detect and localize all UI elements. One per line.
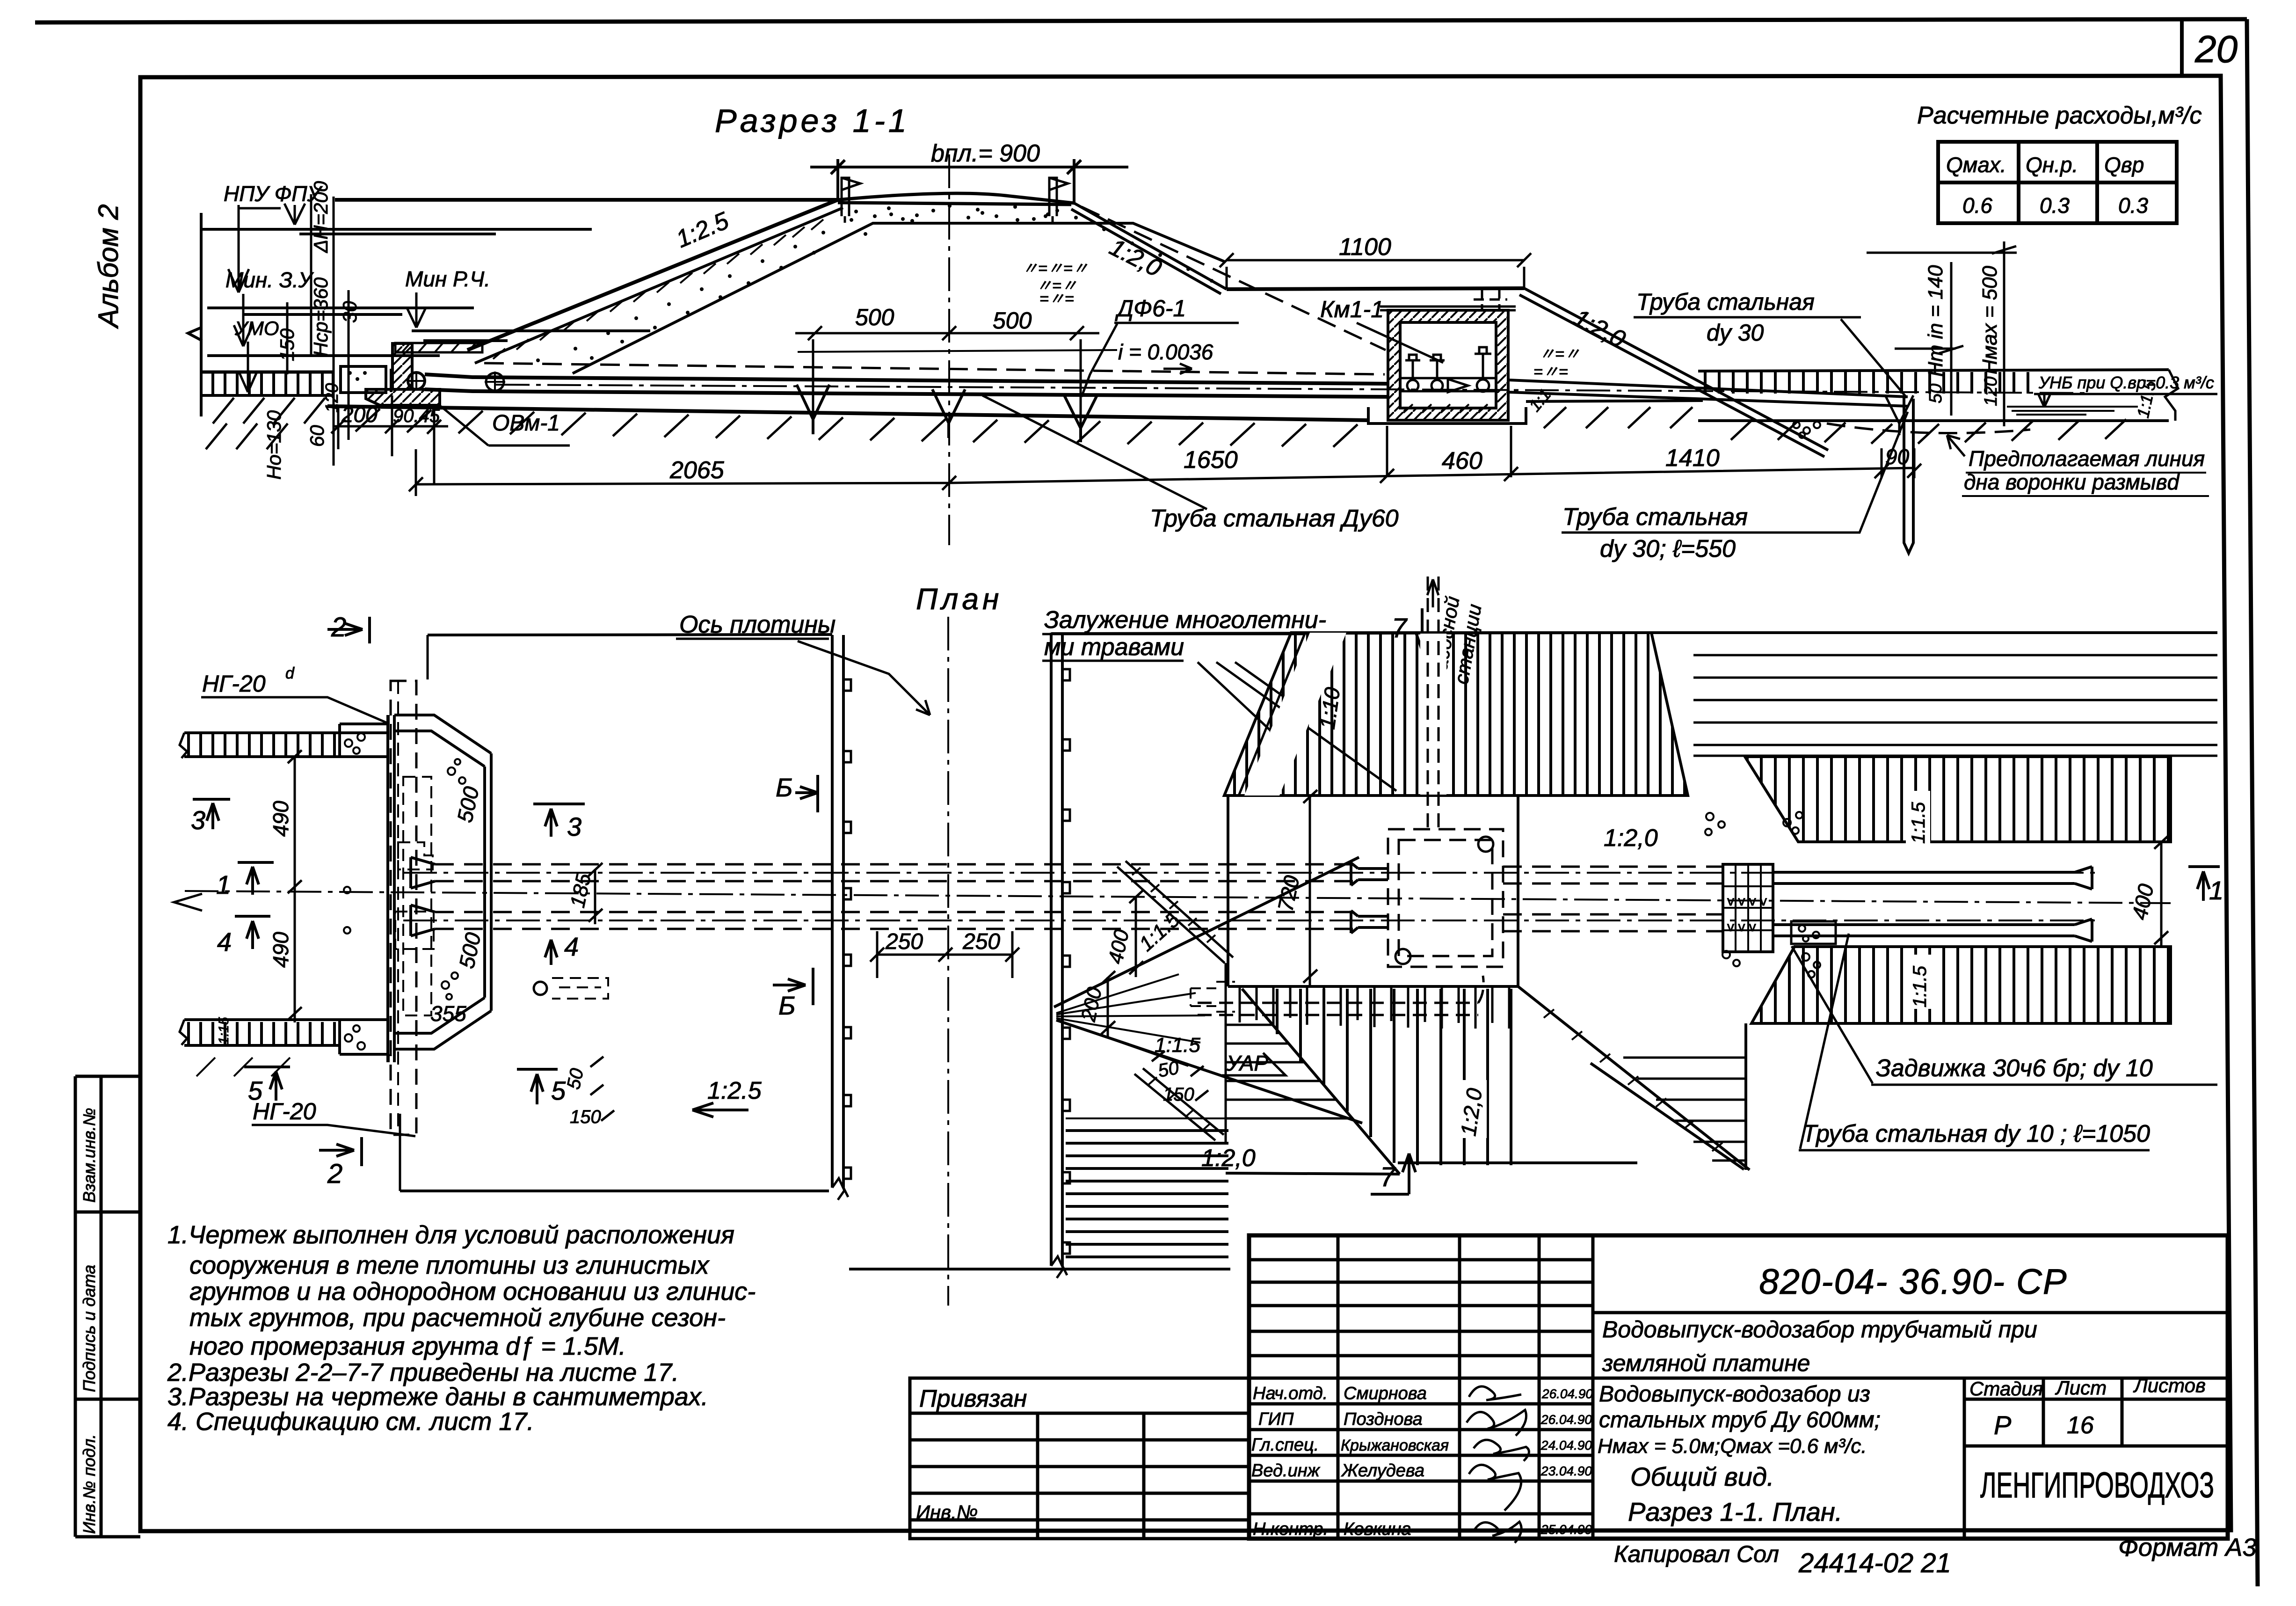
svg-text:dy 30: dy 30 [1707,320,1764,346]
svg-text:23.04.90: 23.04.90 [1540,1464,1592,1478]
svg-text:150: 150 [1163,1084,1194,1105]
svg-text:Водовыпуск-водозабор из: Водовыпуск-водозабор из [1599,1382,1870,1407]
svg-text:〃=〃: 〃=〃 [1539,345,1580,363]
svg-text:1.Чертеж выполнен для услов: 1.Чертеж выполнен для условий расположен… [167,1221,734,1249]
svg-text:Труба стальная Ду60: Труба стальная Ду60 [1150,505,1399,532]
svg-text:26.04.90: 26.04.90 [1541,1387,1593,1401]
svg-text:v v v v: v v v v [1727,893,1767,909]
svg-text:500: 500 [855,304,894,330]
svg-text:Км1-1: Км1-1 [1320,296,1384,322]
svg-text:Нач.отд.: Нач.отд. [1253,1384,1328,1403]
svg-text:i = 0.0036: i = 0.0036 [1118,340,1213,364]
svg-text:3: 3 [567,812,581,841]
svg-text:1:2,0: 1:2,0 [1604,825,1658,852]
svg-text:Разрез 1-1: Разрез 1-1 [715,102,910,139]
svg-text:0.3: 0.3 [2040,193,2070,218]
svg-text:Но=130: Но=130 [263,410,285,480]
svg-text:Крыжановская: Крыжановская [1341,1437,1449,1454]
svg-text:460: 460 [1442,447,1482,474]
svg-text:2: 2 [327,1159,342,1189]
svg-text:16: 16 [2067,1412,2094,1439]
svg-text:Водовыпуск-водозабор трубчаты: Водовыпуск-водозабор трубчатый при [1602,1316,2037,1343]
svg-text:355: 355 [430,1001,466,1026]
svg-text:Мин Р.Ч.: Мин Р.Ч. [405,267,490,291]
svg-text:490: 490 [269,932,293,968]
svg-text:60: 60 [306,425,328,447]
svg-text:Нср=360: Нср=360 [310,277,332,357]
svg-text:1:1.5: 1:1.5 [1908,802,1929,844]
svg-text:ЛЕНГИПРОВОДХОЗ: ЛЕНГИПРОВОДХОЗ [1980,1465,2214,1505]
svg-text:3.Разрезы на чертеже даны: 3.Разрезы на чертеже даны в сантиметрах. [167,1383,708,1411]
svg-text:0.3: 0.3 [2118,193,2148,218]
svg-text:Лист: Лист [2055,1377,2107,1399]
svg-text:УМО: УМО [234,317,279,339]
svg-text:=〃=: =〃= [1039,290,1074,308]
svg-text:1100: 1100 [1339,234,1391,261]
svg-text:Н.контр.: Н.контр. [1253,1519,1328,1539]
svg-text:1:15: 1:15 [216,1017,232,1044]
svg-text:Подпись и дата: Подпись и дата [80,1265,99,1392]
svg-text:План: План [916,582,1003,616]
svg-text:5: 5 [551,1076,566,1105]
svg-text:Б: Б [778,991,795,1020]
svg-text:стальных труб Ду 600мм;: стальных труб Ду 600мм; [1599,1408,1881,1432]
svg-text:1410: 1410 [1665,445,1720,472]
svg-text:1:2.5: 1:2.5 [707,1077,762,1104]
svg-text:250: 250 [962,929,1000,954]
svg-text:Общий вид.: Общий вид. [1630,1462,1774,1491]
svg-text:4: 4 [217,927,232,956]
svg-text:Инв.№: Инв.№ [916,1501,978,1523]
svg-text:Взам.инв.№: Взам.инв.№ [80,1108,99,1203]
svg-text:Смирнова: Смирнова [1344,1384,1427,1403]
svg-text:490: 490 [269,801,293,837]
svg-text:сооружения в теле плотины: сооружения в теле плотины из глинистых [189,1251,710,1279]
svg-text:4. Спецификацию см. лист: 4. Спецификацию см. лист 17. [167,1408,534,1436]
svg-text:0.6: 0.6 [1962,193,1992,218]
svg-text:Qмах.: Qмах. [1946,153,2006,177]
svg-text:〃=〃=〃: 〃=〃=〃 [1022,260,1089,277]
svg-text:Позднова: Позднова [1344,1409,1423,1429]
svg-text:1:1.5: 1:1.5 [1910,965,1930,1007]
svg-text:грунтов и на однородном ос: грунтов и на однородном основании из гли… [189,1277,756,1306]
svg-text:Расчетные расходы,м³/с: Расчетные расходы,м³/с [1917,102,2202,129]
svg-text:ГИП: ГИП [1258,1409,1294,1429]
svg-text:Предполагаемая линия: Предполагаемая линия [1969,446,2205,471]
svg-text:Инв.№ подл.: Инв.№ подл. [80,1434,99,1534]
svg-text:25.04.90: 25.04.90 [1540,1522,1592,1537]
svg-text:d: d [285,664,295,682]
svg-text:Задвижка 30ч6 бр; dy 10: Задвижка 30ч6 бр; dy 10 [1876,1055,2153,1082]
svg-text:НПУ ФПУ: НПУ ФПУ [224,182,323,206]
svg-text:2.Разрезы 2-2–7-7 приведены: 2.Разрезы 2-2–7-7 приведены на листе 17. [167,1358,679,1387]
svg-text:2: 2 [331,612,346,642]
svg-text:Вед.инж: Вед.инж [1251,1461,1321,1481]
svg-text:=〃=: =〃= [1533,363,1568,381]
svg-text:ДФ6-1: ДФ6-1 [1115,295,1186,321]
svg-text:ного промерзания грунта dƒ: ного промерзания грунта dƒ = 1.5М. [189,1332,626,1361]
svg-text:Формат А3: Формат А3 [2118,1533,2256,1562]
svg-text:НГ-20: НГ-20 [202,671,266,697]
svg-text:Привязан: Привязан [919,1385,1027,1412]
svg-text:50: 50 [1156,1058,1180,1081]
svg-text:26.04.90: 26.04.90 [1540,1412,1592,1427]
svg-text:200: 200 [341,402,378,427]
svg-text:Hm in = 140: Hm in = 140 [1924,265,1947,377]
svg-text:4: 4 [564,932,579,961]
svg-text:НГ-20: НГ-20 [253,1098,316,1124]
svg-text:УНБ при Q.вр=0.3 м³/с: УНБ при Q.вр=0.3 м³/с [2038,373,2214,392]
svg-text:1: 1 [216,870,231,899]
svg-text:1:2,0: 1:2,0 [1201,1145,1256,1172]
svg-text:Б: Б [776,773,792,802]
svg-text:250: 250 [885,929,923,954]
svg-text:dy 30; ℓ=550: dy 30; ℓ=550 [1600,535,1736,562]
svg-text:500: 500 [993,307,1032,334]
svg-text:v v v: v v v [1727,919,1756,934]
svg-text:50: 50 [563,1066,588,1091]
svg-text:Р: Р [1994,1410,2011,1440]
svg-text:bпл.= 900: bпл.= 900 [931,140,1040,167]
svg-text:820-04- 36.90- СР: 820-04- 36.90- СР [1759,1262,2067,1302]
svg-text:ми травами: ми травами [1044,634,1184,661]
svg-text:Разрез 1-1. План.: Разрез 1-1. План. [1628,1497,1842,1526]
svg-text:Желудева: Желудева [1341,1461,1424,1481]
svg-text:Труба стальная: Труба стальная [1636,289,1815,315]
svg-text:Листов: Листов [2133,1374,2206,1396]
svg-text:ОВм-1: ОВм-1 [492,411,560,436]
svg-text:Альбом 2: Альбом 2 [93,204,124,329]
svg-text:2065: 2065 [669,457,725,484]
svg-text:Qн.р.: Qн.р. [2026,153,2078,177]
svg-text:Стадия: Стадия [1969,1378,2043,1400]
svg-text:тых грунтов, при расчетной: тых грунтов, при расчетной глубине сезон… [189,1304,726,1332]
svg-text:3: 3 [191,805,205,835]
svg-text:Капировал Сол: Капировал Сол [1614,1541,1779,1567]
svg-text:1650: 1650 [1184,446,1238,474]
svg-text:ΔH=200: ΔH=200 [310,181,332,253]
svg-text:20: 20 [2194,28,2238,71]
svg-text:земляной платине: земляной платине [1602,1350,1810,1376]
svg-text:Труба стальная: Труба стальная [1562,504,1748,531]
svg-text:24.04.90: 24.04.90 [1540,1438,1592,1453]
svg-text:150: 150 [570,1107,601,1127]
svg-text:Труба стальная dy 10 ; ℓ=105: Труба стальная dy 10 ; ℓ=1050 [1802,1120,2150,1147]
svg-text:Hмах = 500: Hмах = 500 [1978,266,2001,374]
svg-text:Залужение многолетни-: Залужение многолетни- [1044,606,1326,634]
svg-text:24414-02 21: 24414-02 21 [1798,1548,1951,1578]
svg-text:1: 1 [2209,876,2223,905]
svg-text:Qвр: Qвр [2104,153,2144,177]
svg-text:Мин. З.У: Мин. З.У [225,268,314,292]
svg-text:Гл.спец.: Гл.спец. [1251,1435,1319,1455]
svg-text:Ковкина: Ковкина [1344,1519,1411,1539]
svg-text:Hмах = 5.0м;Qмах =0.6 м³/с.: Hмах = 5.0м;Qмах =0.6 м³/с. [1598,1435,1867,1458]
